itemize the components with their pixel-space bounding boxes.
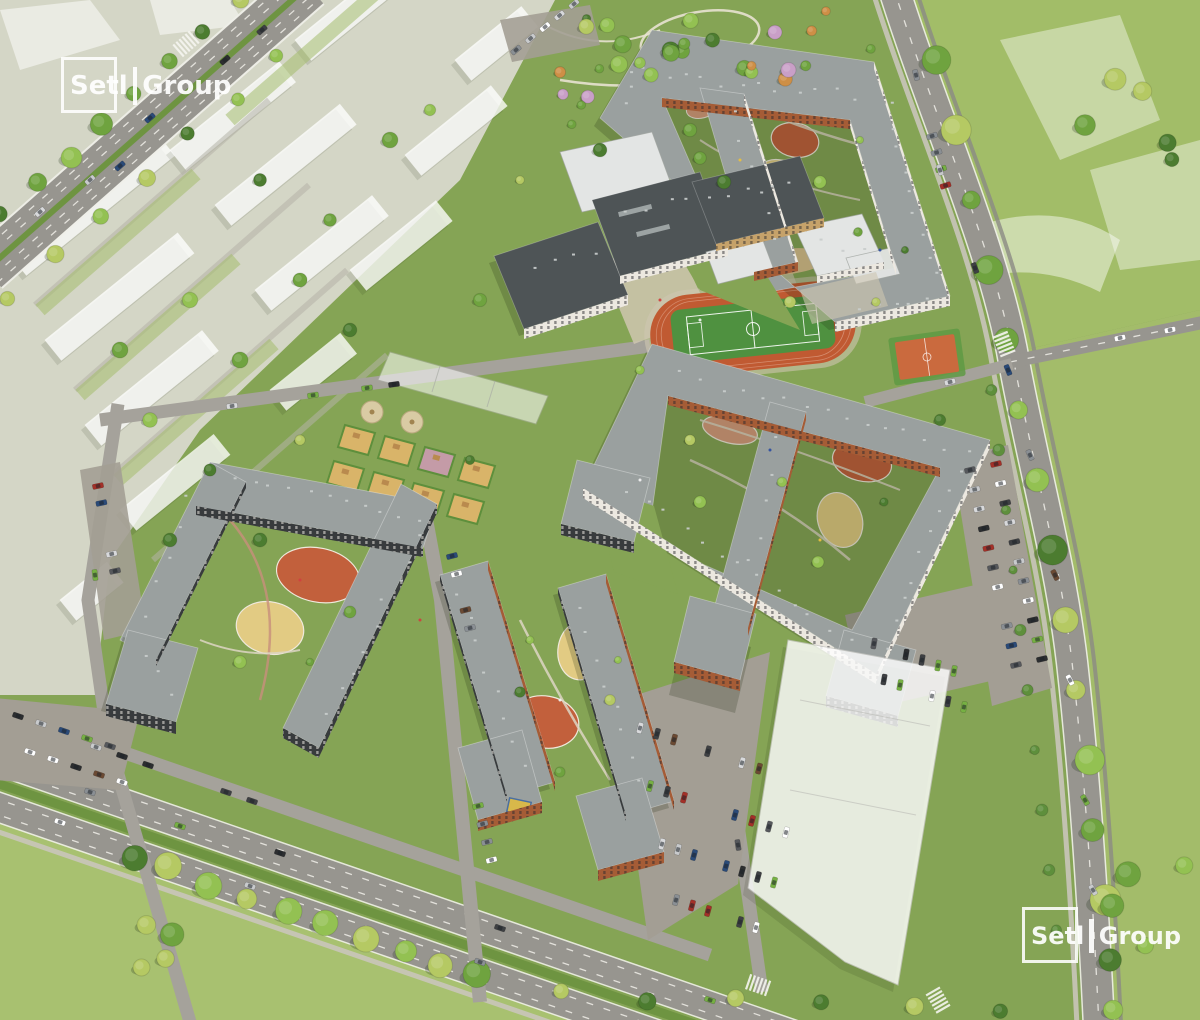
rooftop-unit: [896, 303, 899, 305]
tree-highlight: [945, 119, 960, 134]
rooftop-unit: [418, 520, 421, 522]
rooftop-unit: [631, 757, 634, 759]
rooftop-unit: [742, 389, 745, 391]
rooftop-unit: [595, 253, 598, 255]
rooftop-unit: [737, 140, 740, 142]
tree-highlight: [1023, 686, 1029, 692]
rooftop-unit: [455, 594, 458, 596]
tree-highlight: [197, 26, 204, 33]
tree-highlight: [908, 1000, 917, 1009]
rooftop-unit: [741, 591, 744, 593]
rooftop-unit: [645, 210, 648, 212]
rooftop-unit: [908, 190, 911, 192]
rooftop-unit: [747, 559, 750, 561]
rooftop-unit: [904, 597, 907, 599]
rooftop-unit: [895, 620, 898, 622]
tree-highlight: [995, 1006, 1002, 1013]
tree-highlight: [431, 956, 443, 968]
rooftop-unit: [669, 77, 672, 79]
tree-highlight: [685, 125, 692, 132]
tree-highlight: [707, 35, 714, 42]
tree-highlight: [1041, 539, 1056, 554]
tree-highlight: [739, 62, 747, 70]
tree-highlight: [135, 961, 143, 969]
tree-highlight: [685, 15, 693, 23]
rooftop-unit: [727, 195, 730, 197]
tree-highlight: [778, 478, 783, 483]
car-glass: [365, 386, 370, 390]
rooftop-unit: [345, 500, 348, 502]
tree-highlight: [255, 535, 262, 542]
rooftop-unit: [938, 510, 941, 512]
rooftop-unit: [799, 92, 802, 94]
tree-highlight: [184, 294, 192, 302]
rooftop-unit: [765, 499, 768, 501]
rooftop-unit: [625, 102, 628, 104]
rooftop-unit: [624, 211, 627, 213]
tree-highlight: [583, 92, 590, 99]
tree-highlight: [881, 499, 885, 503]
rooftop-unit: [909, 582, 912, 584]
rooftop-unit: [782, 397, 785, 399]
tree-highlight: [426, 106, 432, 112]
rooftop-unit: [755, 574, 758, 576]
tree-highlight: [808, 27, 813, 32]
tree-highlight: [1167, 154, 1174, 161]
rooftop-unit: [968, 450, 971, 452]
tree-highlight: [1077, 117, 1087, 127]
rooftop-unit: [923, 439, 926, 441]
watermark-text: Setl Group: [1031, 907, 1181, 964]
tree-highlight: [637, 367, 641, 371]
rooftop-unit: [747, 188, 750, 190]
tree-highlight: [729, 992, 737, 1000]
rooftop-unit: [578, 607, 581, 609]
tree-highlight: [316, 913, 329, 926]
tree-highlight: [857, 137, 861, 141]
rooftop-unit: [329, 495, 332, 497]
rooftop-unit: [846, 418, 849, 420]
rooftop-unit: [630, 71, 633, 73]
tree-highlight: [569, 121, 573, 125]
rooftop-unit: [929, 257, 932, 259]
tree-highlight: [641, 995, 650, 1004]
rooftop-unit: [648, 501, 651, 503]
rooftop-unit: [625, 491, 628, 493]
person: [739, 159, 742, 162]
tree-highlight: [234, 354, 242, 362]
tree-highlight: [1045, 866, 1051, 872]
rooftop-unit: [721, 556, 724, 558]
tree-highlight: [556, 768, 561, 773]
tree-highlight: [1016, 626, 1022, 632]
rooftop-unit: [534, 267, 537, 269]
tree-highlight: [356, 929, 369, 942]
rooftop-unit: [761, 397, 764, 399]
rooftop-unit: [778, 590, 781, 592]
tree-highlight: [141, 172, 150, 181]
rooftop-unit: [616, 706, 619, 708]
tree-highlight: [475, 295, 482, 302]
person: [879, 249, 882, 252]
rooftop-unit: [157, 670, 160, 672]
rooftop-unit: [853, 99, 856, 101]
tree-highlight: [1084, 821, 1096, 833]
tree-highlight: [814, 558, 820, 564]
tree-highlight: [398, 943, 409, 954]
rooftop-unit: [904, 172, 907, 174]
tree-highlight: [770, 27, 777, 34]
masterplan-scene: [0, 0, 1200, 1020]
rooftop-unit: [144, 616, 147, 618]
tree-highlight: [1012, 403, 1021, 412]
tree-highlight: [783, 64, 790, 71]
person: [299, 579, 302, 582]
tent-pole: [370, 410, 375, 415]
tree-highlight: [926, 49, 940, 63]
rooftop-unit: [554, 259, 557, 261]
rooftop-unit: [892, 128, 895, 130]
brand-group: Group: [1099, 922, 1181, 950]
tree-highlight: [125, 849, 138, 862]
rooftop-unit: [774, 436, 777, 438]
rooftop-unit: [380, 599, 383, 601]
tree-highlight: [994, 446, 1000, 452]
rooftop-unit: [310, 490, 313, 492]
tree-highlight: [786, 298, 792, 304]
rooftop-unit: [948, 490, 951, 492]
rooftop-unit: [787, 182, 790, 184]
tree-highlight: [198, 876, 211, 889]
rooftop-unit: [661, 509, 664, 511]
tree-highlight: [680, 39, 686, 45]
tree-highlight: [719, 177, 726, 184]
tree-highlight: [31, 175, 40, 184]
rooftop-unit: [584, 631, 587, 633]
tree-highlight: [695, 497, 701, 503]
rooftop-unit: [960, 470, 963, 472]
rooftop-unit: [827, 409, 830, 411]
car-glass: [311, 393, 316, 397]
rooftop-unit: [362, 651, 365, 653]
tree-highlight: [114, 344, 122, 352]
tree-highlight: [559, 90, 564, 95]
tree-highlight: [823, 8, 827, 12]
tree-highlight: [964, 193, 973, 202]
rooftop-unit: [671, 198, 674, 200]
car-glass: [904, 652, 909, 657]
rooftop-unit: [170, 694, 173, 696]
tree-highlight: [384, 134, 392, 142]
tree-highlight: [466, 963, 480, 977]
tree-highlight: [602, 20, 609, 27]
tree-highlight: [325, 215, 331, 221]
tree-highlight: [1038, 806, 1044, 812]
tree-highlight: [139, 918, 148, 927]
car-glass: [952, 669, 957, 674]
tree-highlight: [64, 150, 74, 160]
rooftop-unit: [325, 713, 328, 715]
car-glass: [930, 694, 935, 699]
tree-highlight: [165, 535, 172, 542]
tree-highlight: [158, 856, 172, 870]
tree-highlight: [695, 153, 701, 159]
car-glass: [736, 843, 740, 848]
tree-highlight: [95, 210, 103, 218]
rooftop-unit: [524, 765, 527, 767]
tree-highlight: [467, 457, 472, 462]
person: [769, 449, 772, 452]
tree-highlight: [233, 95, 240, 102]
tree-highlight: [517, 177, 521, 181]
tree-highlight: [1135, 84, 1144, 93]
rooftop-unit: [502, 717, 505, 719]
rooftop-unit: [742, 84, 745, 86]
person: [559, 699, 562, 702]
tree-highlight: [665, 47, 673, 55]
tree-highlight: [1031, 747, 1036, 752]
rooftop-unit: [760, 191, 763, 193]
tree-highlight: [815, 997, 823, 1005]
rooftop-unit: [287, 487, 290, 489]
rooftop-unit: [723, 390, 726, 392]
rooftop-unit: [771, 185, 774, 187]
tree-highlight: [346, 608, 352, 614]
tree-highlight: [1161, 136, 1170, 145]
brand-setl: Setl: [1031, 922, 1084, 950]
rooftop-unit: [602, 686, 605, 688]
tree-highlight: [616, 38, 625, 47]
tree-highlight: [1010, 567, 1014, 571]
rooftop-unit: [767, 212, 770, 214]
tree-highlight: [205, 465, 211, 471]
basketball-court: [888, 328, 966, 386]
tree-highlight: [255, 175, 261, 181]
tree-highlight: [613, 58, 622, 67]
car-glass: [872, 641, 877, 646]
rooftop-unit: [773, 90, 776, 92]
tree-highlight: [581, 21, 589, 29]
tree-highlight: [606, 696, 611, 701]
rooftop-unit: [836, 88, 839, 90]
rooftop-unit: [684, 198, 687, 200]
rooftop-unit: [341, 687, 344, 689]
rooftop-unit: [497, 690, 500, 692]
tree-highlight: [2, 293, 9, 300]
tree-highlight: [1002, 506, 1007, 511]
tree-highlight: [271, 51, 278, 58]
rooftop-unit: [400, 579, 403, 581]
rooftop-unit: [678, 370, 681, 372]
rooftop-unit: [813, 88, 816, 90]
tree-highlight: [307, 659, 311, 663]
rooftop-unit: [943, 449, 946, 451]
brand-group: Group: [142, 71, 231, 101]
rooftop-unit: [841, 250, 844, 252]
tree-highlight: [815, 177, 821, 183]
rooftop-unit: [687, 527, 690, 529]
rooftop-unit: [637, 780, 640, 782]
tree-highlight: [239, 891, 249, 901]
rooftop-unit: [757, 82, 760, 84]
tree-highlight: [748, 62, 753, 67]
rooftop-unit: [926, 298, 929, 300]
rooftop-unit: [630, 86, 633, 88]
tree-highlight: [646, 70, 653, 77]
rooftop-unit: [155, 580, 158, 582]
tree-highlight: [144, 414, 151, 421]
watermark-divider: [133, 67, 138, 105]
tree-highlight: [1178, 859, 1187, 868]
rooftop-unit: [806, 406, 809, 408]
tree-highlight: [802, 62, 807, 67]
rooftop-unit: [887, 648, 890, 650]
car-glass: [962, 705, 967, 710]
tree-highlight: [1107, 71, 1118, 82]
tree-highlight: [1028, 471, 1040, 483]
watermark-text: Setl Group: [70, 57, 231, 114]
car-glass: [882, 677, 887, 682]
person: [419, 619, 422, 622]
masterplan-render: Setl Group Setl Group: [0, 0, 1200, 1020]
tree-highlight: [1119, 865, 1132, 878]
car-glass: [230, 404, 235, 408]
rooftop-unit: [759, 537, 762, 539]
car-glass: [93, 573, 97, 578]
rooftop-unit: [699, 379, 702, 381]
rooftop-unit: [794, 604, 797, 606]
car-glass: [920, 658, 925, 663]
person: [819, 539, 822, 542]
rooftop-unit: [891, 102, 894, 104]
rooftop-unit: [701, 542, 704, 544]
tree-highlight: [49, 248, 58, 257]
tree-highlight: [527, 637, 531, 641]
rooftop-unit: [929, 530, 932, 532]
rooftop-unit: [511, 741, 514, 743]
rooftop-unit: [911, 212, 914, 214]
rooftop-unit: [828, 630, 831, 632]
tent-pole: [410, 420, 415, 425]
car-glass: [898, 683, 903, 688]
tree-highlight: [182, 128, 189, 135]
person: [639, 479, 642, 482]
rooftop-unit: [418, 534, 421, 536]
tree-highlight: [235, 657, 241, 663]
tree-highlight: [988, 386, 993, 391]
rooftop-unit: [850, 639, 853, 641]
tree-highlight: [902, 247, 906, 251]
rooftop-unit: [376, 626, 379, 628]
rooftop-unit: [572, 254, 575, 256]
rooftop-unit: [820, 239, 823, 241]
rooftop-unit: [595, 660, 598, 662]
tree-highlight: [295, 275, 302, 282]
tree-highlight: [516, 688, 521, 693]
rooftop-unit: [922, 234, 925, 236]
tree-highlight: [345, 325, 352, 332]
rooftop-unit: [685, 73, 688, 75]
rooftop-unit: [352, 673, 355, 675]
tree-highlight: [1106, 1003, 1116, 1013]
tree-highlight: [93, 116, 104, 127]
rooftop-unit: [863, 248, 866, 250]
rooftop-unit: [894, 145, 897, 147]
rooftop-unit: [470, 617, 473, 619]
rooftop-unit: [179, 526, 182, 528]
rooftop-unit: [234, 477, 237, 479]
tree-highlight: [855, 229, 859, 233]
rooftop-unit: [145, 655, 148, 657]
rooftop-unit: [867, 424, 870, 426]
tree-highlight: [596, 65, 600, 69]
tree-highlight: [556, 68, 562, 74]
rooftop-unit: [907, 303, 910, 305]
rooftop-unit: [719, 86, 722, 88]
rooftop-unit: [917, 551, 920, 553]
rooftop-unit: [699, 76, 702, 78]
rooftop-unit: [184, 495, 187, 497]
rooftop-unit: [770, 474, 773, 476]
tree-highlight: [636, 59, 642, 65]
tree-highlight: [978, 259, 992, 273]
tree-highlight: [1056, 610, 1069, 623]
rooftop-unit: [364, 505, 367, 507]
tree-highlight: [936, 416, 942, 422]
tree-highlight: [1079, 749, 1094, 764]
person: [699, 319, 702, 322]
rooftop-unit: [168, 557, 171, 559]
rooftop-unit: [805, 613, 808, 615]
tree-highlight: [555, 985, 563, 993]
person: [659, 299, 662, 302]
rooftop-unit: [378, 511, 381, 513]
rooftop-unit: [266, 485, 269, 487]
car-glass: [392, 382, 397, 386]
car-glass: [936, 663, 941, 668]
tree-highlight: [296, 436, 301, 441]
tree-highlight: [595, 145, 602, 152]
rooftop-unit: [935, 272, 938, 274]
rooftop-unit: [474, 639, 477, 641]
rooftop-unit: [255, 481, 258, 483]
car: [92, 569, 99, 581]
rooftop-unit: [397, 516, 400, 518]
car-glass: [946, 699, 951, 704]
rooftop-unit: [736, 561, 739, 563]
rooftop-unit: [619, 728, 622, 730]
watermark-divider: [1089, 919, 1094, 953]
rooftop-unit: [409, 561, 412, 563]
rooftop-unit: [750, 165, 753, 167]
rooftop-unit: [902, 428, 905, 430]
rooftop-unit: [773, 238, 776, 240]
brand-setl: Setl: [70, 71, 128, 101]
tree-highlight: [873, 299, 877, 303]
tree-highlight: [163, 926, 175, 938]
tree-highlight: [279, 901, 292, 914]
rooftop-unit: [708, 196, 711, 198]
tree-highlight: [868, 46, 872, 50]
tree-highlight: [615, 657, 619, 661]
rooftop-unit: [884, 427, 887, 429]
tree-highlight: [578, 102, 582, 106]
rooftop-unit: [734, 110, 737, 112]
tree-highlight: [686, 436, 691, 441]
rooftop-unit: [482, 672, 485, 674]
tree-highlight: [159, 952, 168, 961]
rooftop-unit: [858, 308, 861, 310]
